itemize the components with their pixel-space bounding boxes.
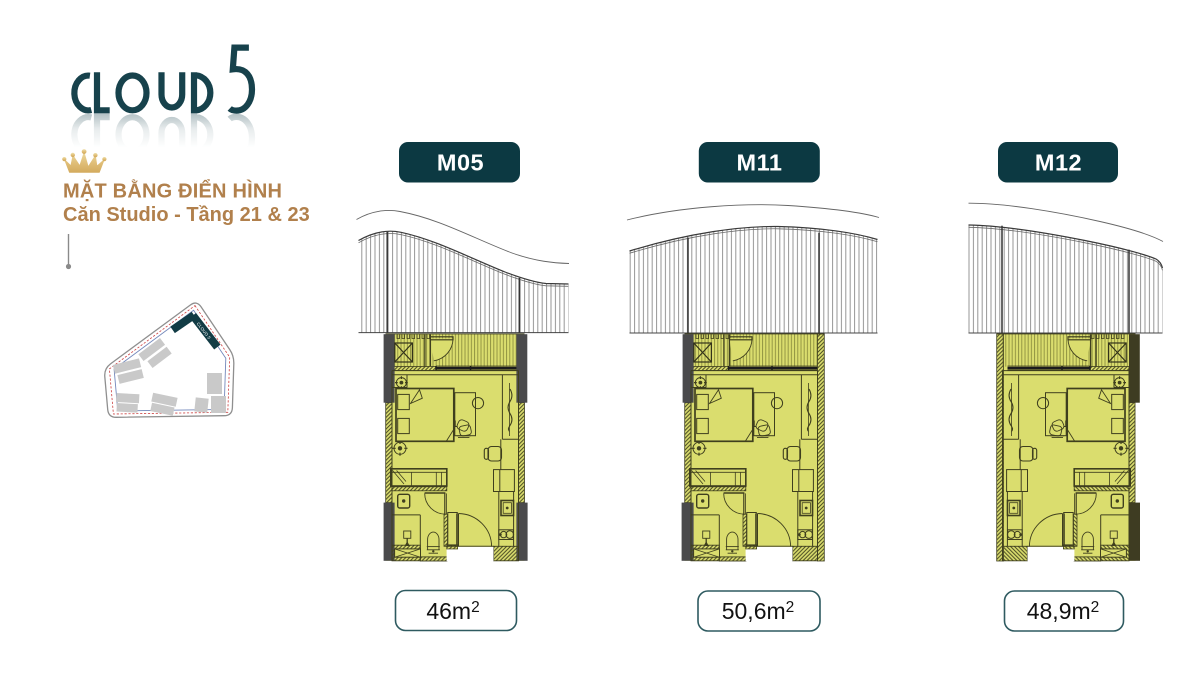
- svg-text:MẶT BẰNG ĐIỂN HÌNH: MẶT BẰNG ĐIỂN HÌNH: [63, 179, 282, 203]
- svg-text:M11: M11: [737, 150, 783, 176]
- svg-text:Căn Studio - Tầng 21 & 23: Căn Studio - Tầng 21 & 23: [63, 204, 310, 226]
- svg-text:M05: M05: [437, 150, 484, 176]
- svg-text:48,9m2: 48,9m2: [1027, 598, 1100, 624]
- svg-text:M12: M12: [1035, 150, 1082, 176]
- svg-text:50,6m2: 50,6m2: [722, 598, 795, 624]
